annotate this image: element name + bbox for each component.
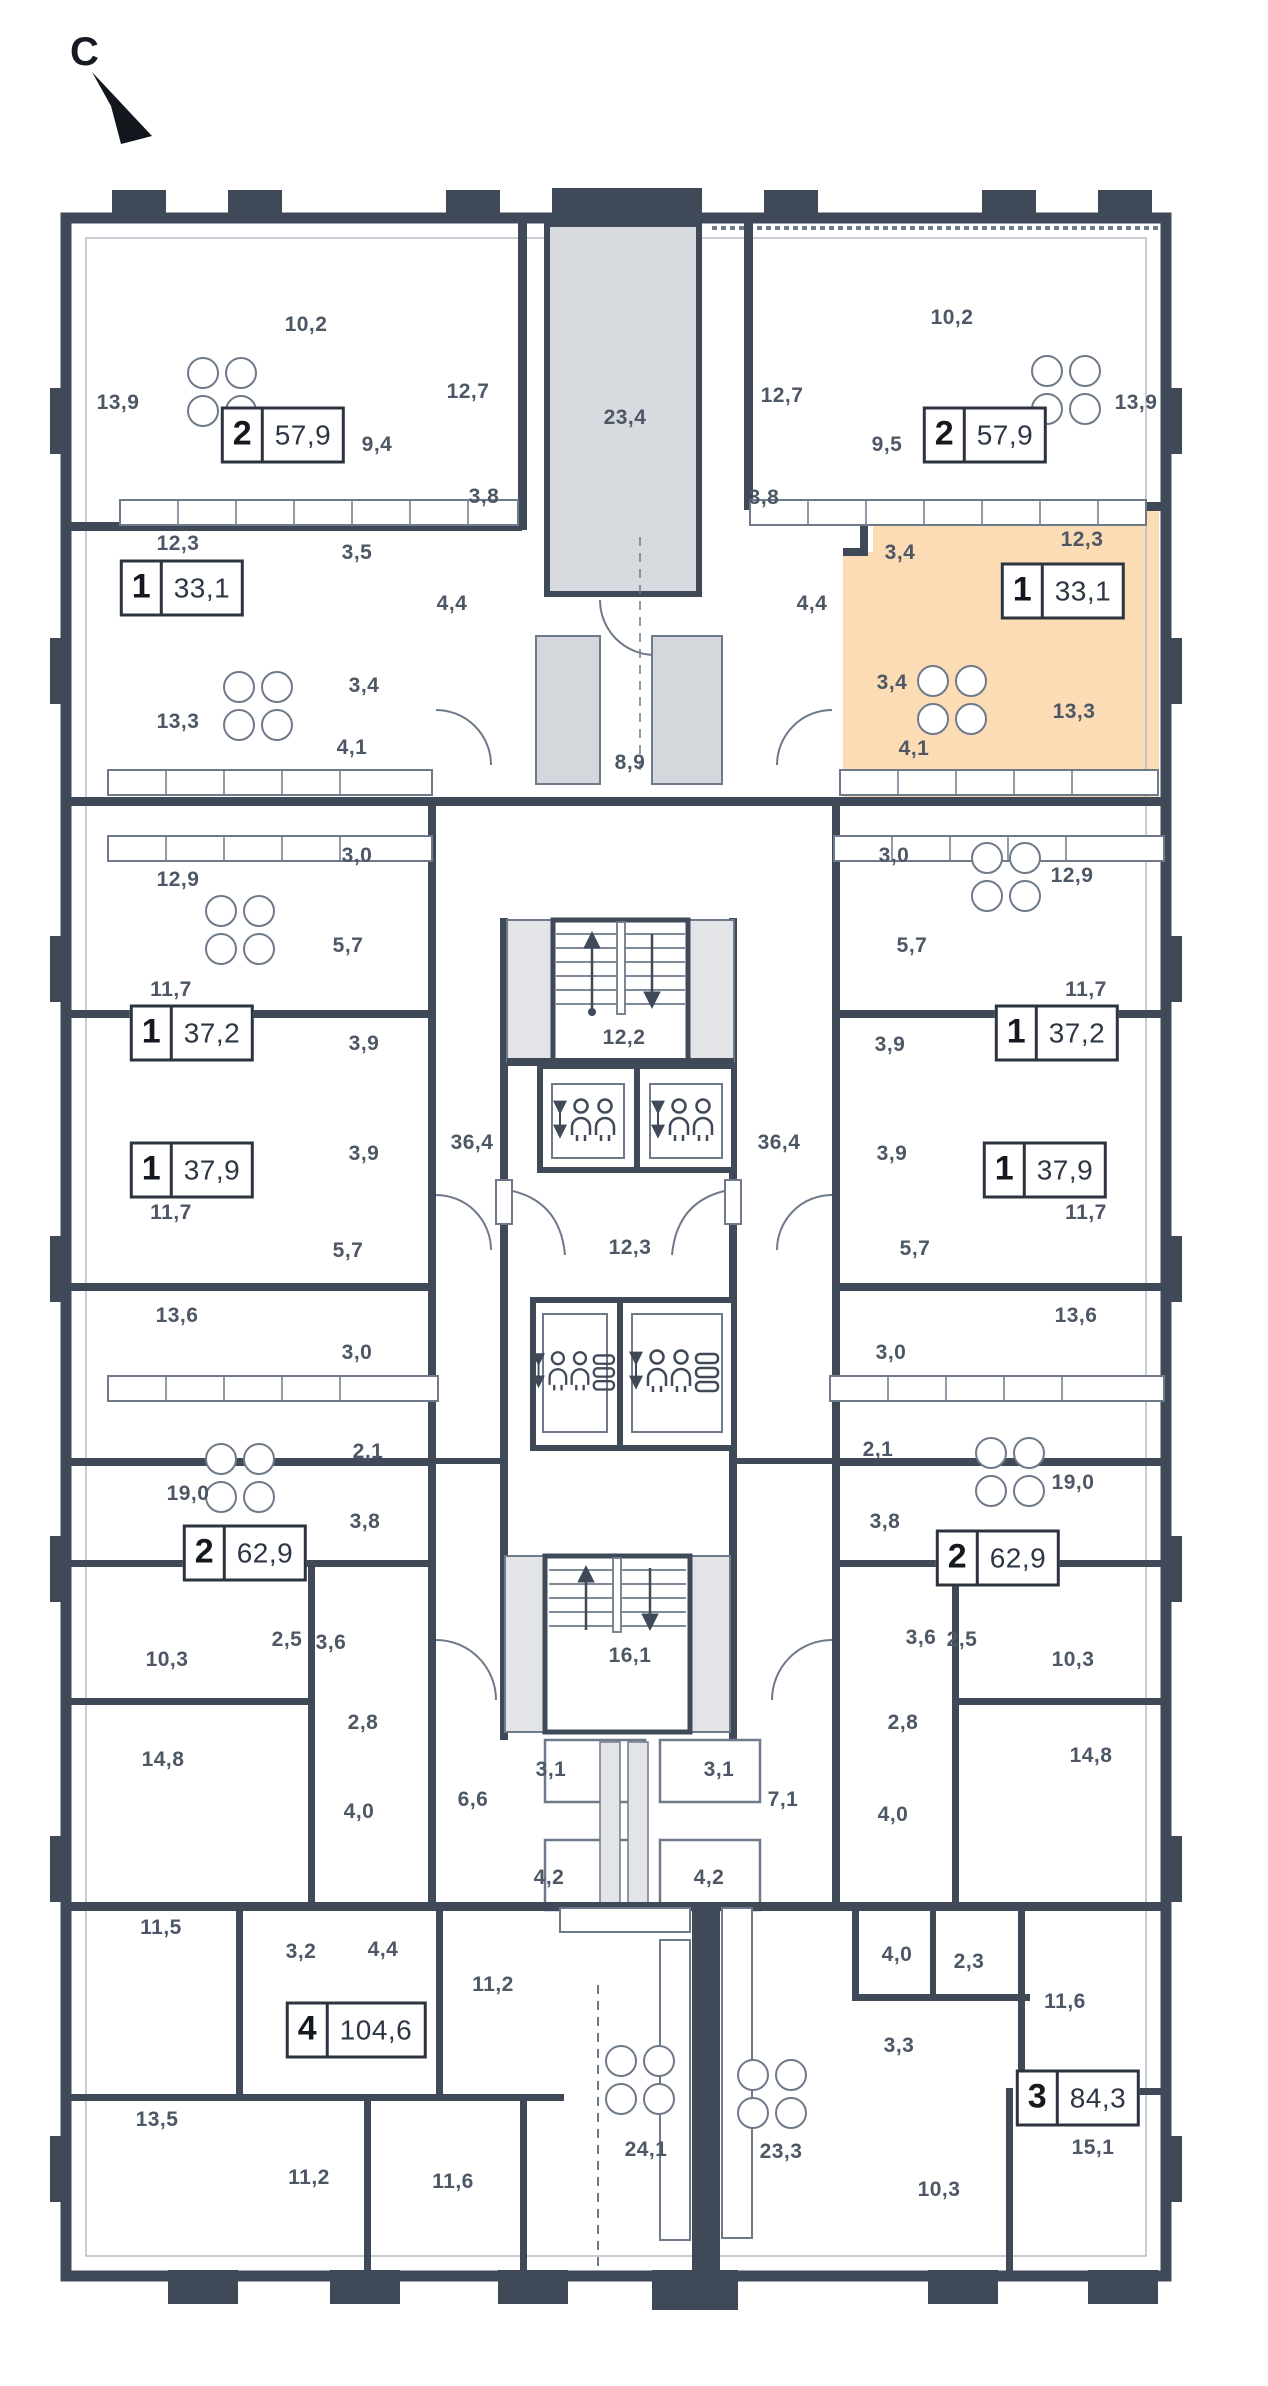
- room-area-label: 4,4: [797, 592, 828, 616]
- floor-plan-canvas: С 13,910,212,723,412,710,213,99,49,53,83…: [0, 0, 1268, 2386]
- room-area-label: 3,4: [349, 674, 380, 698]
- room-area-label: 36,4: [758, 1131, 801, 1155]
- room-area-label: 11,5: [140, 1916, 182, 1940]
- room-area-label: 10,2: [285, 313, 328, 337]
- room-area-label: 2,5: [947, 1628, 978, 1652]
- apartment-area-value: 57,9: [264, 410, 343, 461]
- room-area-label: 11,7: [150, 978, 192, 1002]
- room-area-label: 3,4: [877, 671, 908, 695]
- room-area-label: 4,1: [337, 736, 368, 760]
- apartment-badge[interactable]: 137,2: [130, 1005, 254, 1062]
- apartment-badge[interactable]: 137,9: [983, 1142, 1107, 1199]
- room-area-label: 10,3: [146, 1648, 189, 1672]
- room-area-label: 3,6: [316, 1631, 347, 1655]
- room-area-label: 2,8: [348, 1711, 379, 1735]
- room-area-label: 15,1: [1072, 2136, 1115, 2160]
- room-area-label: 5,7: [333, 1239, 364, 1263]
- room-area-label: 2,3: [954, 1950, 985, 1974]
- room-area-label: 13,6: [1055, 1304, 1098, 1328]
- room-area-label: 8,9: [615, 751, 646, 775]
- room-area-label: 5,7: [900, 1237, 931, 1261]
- room-area-label: 16,1: [609, 1644, 652, 1668]
- room-area-label: 12,9: [157, 868, 200, 892]
- room-area-label: 11,7: [150, 1201, 192, 1225]
- room-area-label: 5,7: [897, 934, 928, 958]
- apartment-badge[interactable]: 137,2: [995, 1005, 1119, 1062]
- room-area-label: 13,9: [97, 391, 140, 415]
- apartment-rooms-count: 2: [926, 410, 966, 461]
- room-area-label: 3,0: [342, 1341, 373, 1365]
- room-area-label: 13,3: [157, 710, 200, 734]
- apartment-rooms-count: 1: [1004, 566, 1044, 617]
- room-area-label: 14,8: [142, 1748, 185, 1772]
- room-area-label: 9,4: [362, 433, 393, 457]
- room-area-label: 3,8: [749, 486, 780, 510]
- room-area-label: 4,2: [534, 1866, 565, 1890]
- room-area-label: 3,5: [342, 541, 373, 565]
- room-area-label: 13,3: [1053, 700, 1096, 724]
- apartment-badge[interactable]: 384,3: [1016, 2070, 1140, 2127]
- room-area-label: 24,1: [625, 2138, 668, 2162]
- room-area-label: 13,6: [156, 1304, 199, 1328]
- apartment-badge-selected[interactable]: 133,1: [1001, 563, 1125, 620]
- room-area-label: 9,5: [872, 433, 903, 457]
- room-area-label: 2,1: [863, 1438, 894, 1462]
- room-area-label: 12,3: [1061, 528, 1104, 552]
- apartment-rooms-count: 2: [224, 410, 264, 461]
- room-area-label: 19,0: [167, 1482, 210, 1506]
- room-area-label: 23,3: [760, 2140, 803, 2164]
- room-area-label: 5,7: [333, 934, 364, 958]
- apartment-badge[interactable]: 262,9: [936, 1530, 1060, 1587]
- room-area-label: 2,8: [888, 1711, 919, 1735]
- room-area-label: 11,7: [1065, 978, 1107, 1002]
- room-area-label: 3,0: [342, 844, 373, 868]
- room-area-label: 12,3: [609, 1236, 652, 1260]
- room-area-label: 4,0: [882, 1943, 913, 1967]
- room-area-label: 10,2: [931, 306, 974, 330]
- room-area-label: 11,6: [432, 2170, 474, 2194]
- room-area-label: 3,8: [350, 1510, 381, 1534]
- apartment-area-value: 37,9: [173, 1145, 252, 1196]
- apartment-badge[interactable]: 257,9: [221, 407, 345, 464]
- apartment-rooms-count: 2: [939, 1533, 979, 1584]
- apartment-area-value: 84,3: [1059, 2073, 1138, 2124]
- room-area-label: 4,0: [878, 1803, 909, 1827]
- room-area-label: 11,2: [472, 1973, 514, 1997]
- apartment-rooms-count: 1: [998, 1008, 1038, 1059]
- room-area-label: 4,1: [899, 737, 930, 761]
- apartment-badge[interactable]: 133,1: [120, 560, 244, 617]
- apartment-badge[interactable]: 137,9: [130, 1142, 254, 1199]
- room-area-label: 36,4: [451, 1131, 494, 1155]
- room-area-label: 10,3: [1052, 1648, 1095, 1672]
- apartment-rooms-count: 3: [1019, 2073, 1059, 2124]
- apartment-rooms-count: 1: [133, 1145, 173, 1196]
- apartment-area-value: 62,9: [226, 1528, 305, 1579]
- room-area-label: 12,2: [603, 1026, 646, 1050]
- labels-layer: 13,910,212,723,412,710,213,99,49,53,83,8…: [0, 0, 1268, 2386]
- apartment-rooms-count: 1: [133, 1008, 173, 1059]
- room-area-label: 3,9: [349, 1032, 380, 1056]
- room-area-label: 6,6: [458, 1788, 489, 1812]
- room-area-label: 4,0: [344, 1800, 375, 1824]
- apartment-area-value: 37,2: [1038, 1008, 1117, 1059]
- room-area-label: 3,8: [469, 485, 500, 509]
- room-area-label: 3,1: [536, 1758, 567, 1782]
- apartment-area-value: 37,9: [1026, 1145, 1105, 1196]
- apartment-badge[interactable]: 257,9: [923, 407, 1047, 464]
- room-area-label: 3,6: [906, 1626, 937, 1650]
- apartment-badge[interactable]: 4104,6: [286, 2002, 427, 2059]
- room-area-label: 10,3: [918, 2178, 961, 2202]
- apartment-area-value: 62,9: [979, 1533, 1058, 1584]
- apartment-area-value: 33,1: [163, 563, 242, 614]
- apartment-rooms-count: 1: [123, 563, 163, 614]
- room-area-label: 7,1: [768, 1788, 799, 1812]
- apartment-badge[interactable]: 262,9: [183, 1525, 307, 1582]
- room-area-label: 3,9: [349, 1142, 380, 1166]
- room-area-label: 4,4: [368, 1938, 399, 1962]
- room-area-label: 14,8: [1070, 1744, 1113, 1768]
- room-area-label: 13,9: [1115, 391, 1158, 415]
- room-area-label: 3,2: [286, 1940, 317, 1964]
- room-area-label: 3,1: [704, 1758, 735, 1782]
- room-area-label: 2,1: [353, 1440, 384, 1464]
- apartment-area-value: 57,9: [966, 410, 1045, 461]
- apartment-rooms-count: 1: [986, 1145, 1026, 1196]
- room-area-label: 3,4: [885, 541, 916, 565]
- room-area-label: 4,2: [694, 1866, 725, 1890]
- apartment-rooms-count: 2: [186, 1528, 226, 1579]
- room-area-label: 11,6: [1044, 1990, 1086, 2014]
- room-area-label: 13,5: [136, 2108, 179, 2132]
- room-area-label: 3,0: [879, 844, 910, 868]
- room-area-label: 3,8: [870, 1510, 901, 1534]
- apartment-area-value: 37,2: [173, 1008, 252, 1059]
- room-area-label: 11,7: [1065, 1201, 1107, 1225]
- room-area-label: 12,9: [1051, 864, 1094, 888]
- room-area-label: 4,4: [437, 592, 468, 616]
- room-area-label: 12,7: [447, 380, 490, 404]
- room-area-label: 12,7: [761, 384, 804, 408]
- room-area-label: 12,3: [157, 532, 200, 556]
- room-area-label: 3,3: [884, 2034, 915, 2058]
- room-area-label: 3,9: [877, 1142, 908, 1166]
- room-area-label: 19,0: [1052, 1471, 1095, 1495]
- room-area-label: 3,0: [876, 1341, 907, 1365]
- apartment-rooms-count: 4: [289, 2005, 329, 2056]
- apartment-area-value: 104,6: [329, 2005, 424, 2056]
- room-area-label: 2,5: [272, 1628, 303, 1652]
- room-area-label: 11,2: [288, 2166, 330, 2190]
- room-area-label: 23,4: [604, 406, 647, 430]
- apartment-area-value: 33,1: [1044, 566, 1123, 617]
- room-area-label: 3,9: [875, 1033, 906, 1057]
